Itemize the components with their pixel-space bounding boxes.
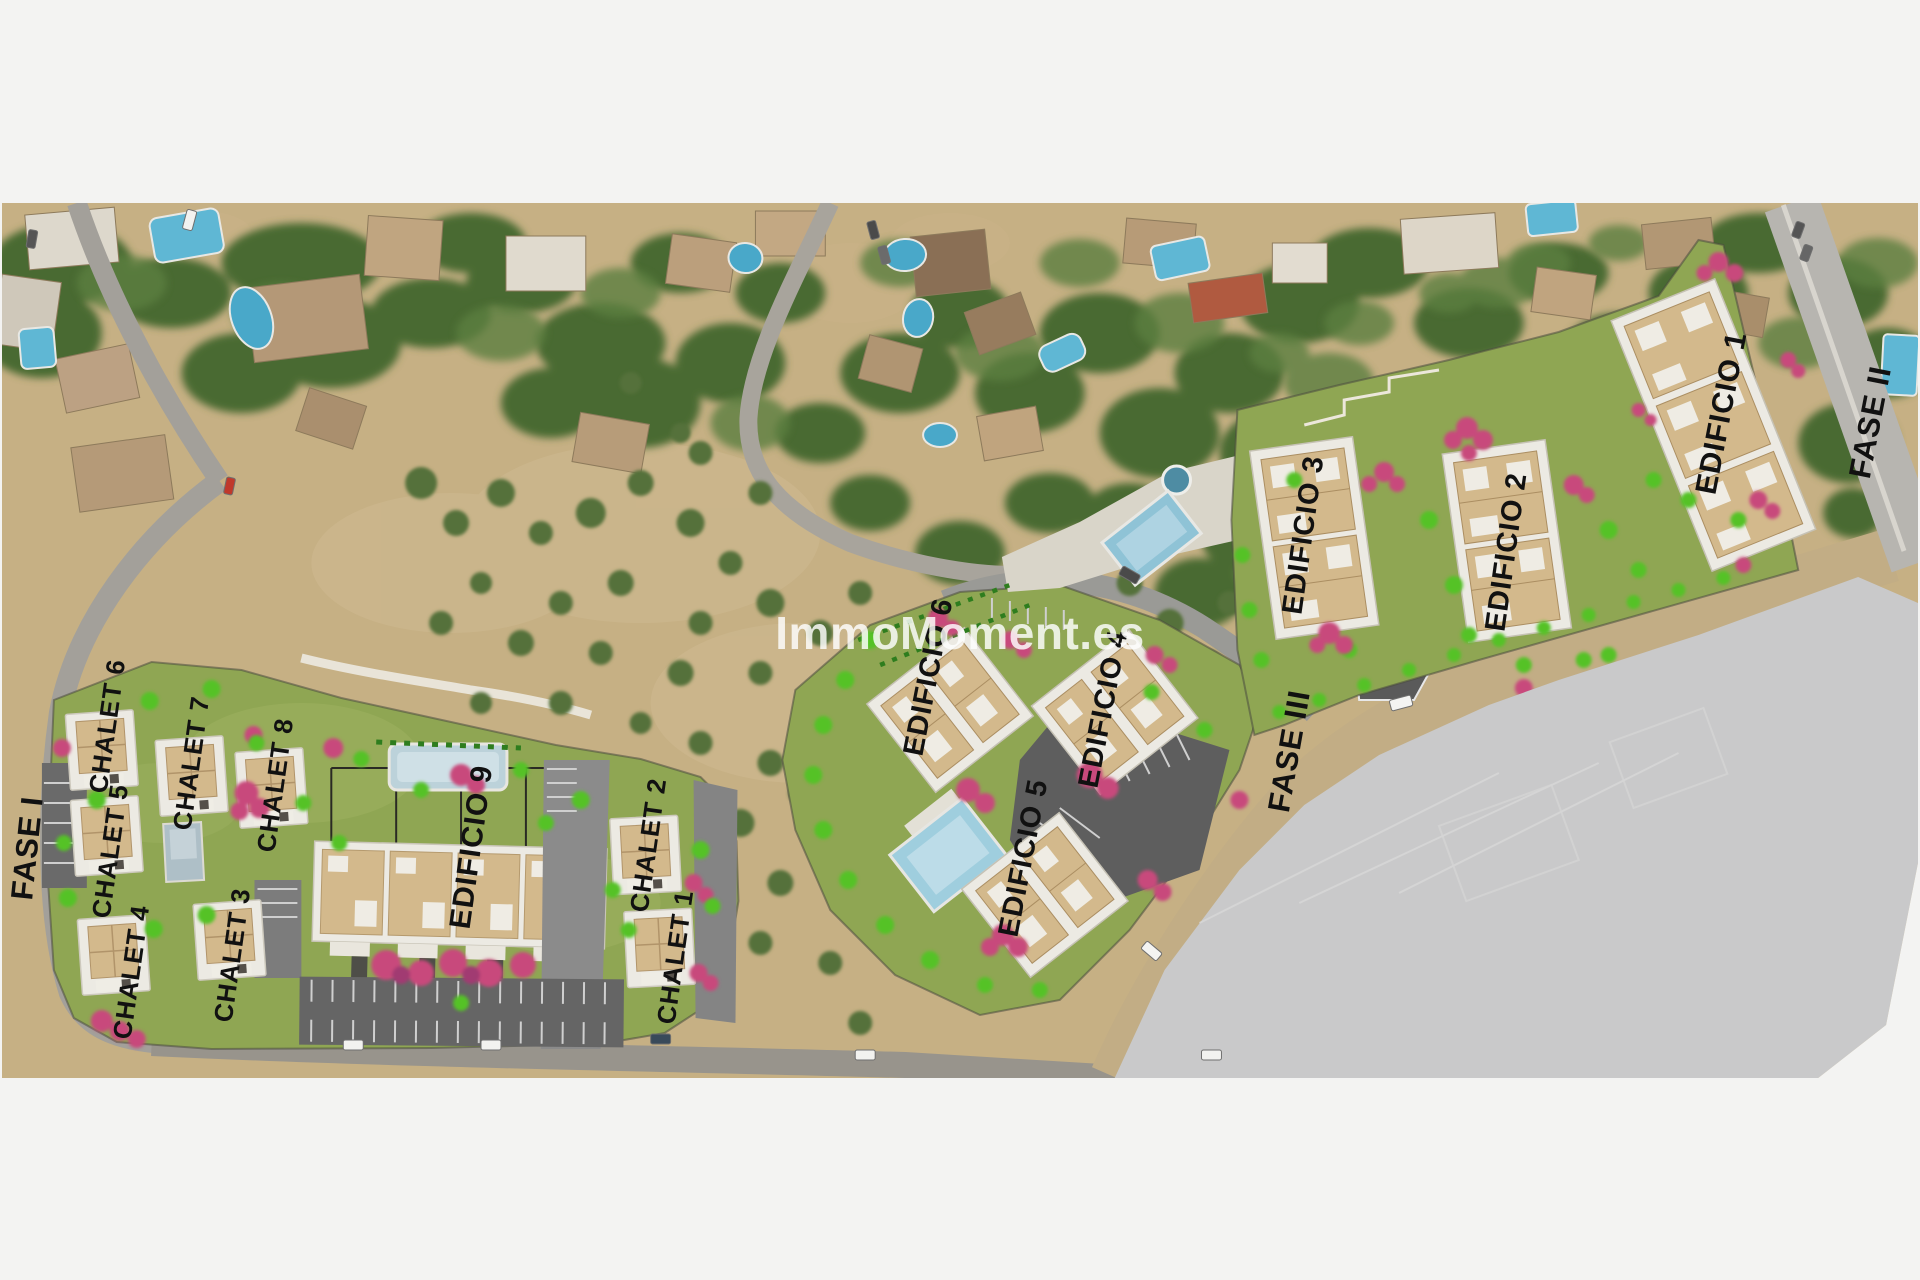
pool-fase1-small (163, 822, 204, 882)
site-plan-image: FASE I CHALET 6 CHALET 7 CHALET 8 CHALET… (0, 0, 1920, 1280)
round-pool (1163, 466, 1191, 494)
parking-lot (299, 977, 624, 1048)
watermark: ImmoMoment.es (775, 606, 1144, 660)
